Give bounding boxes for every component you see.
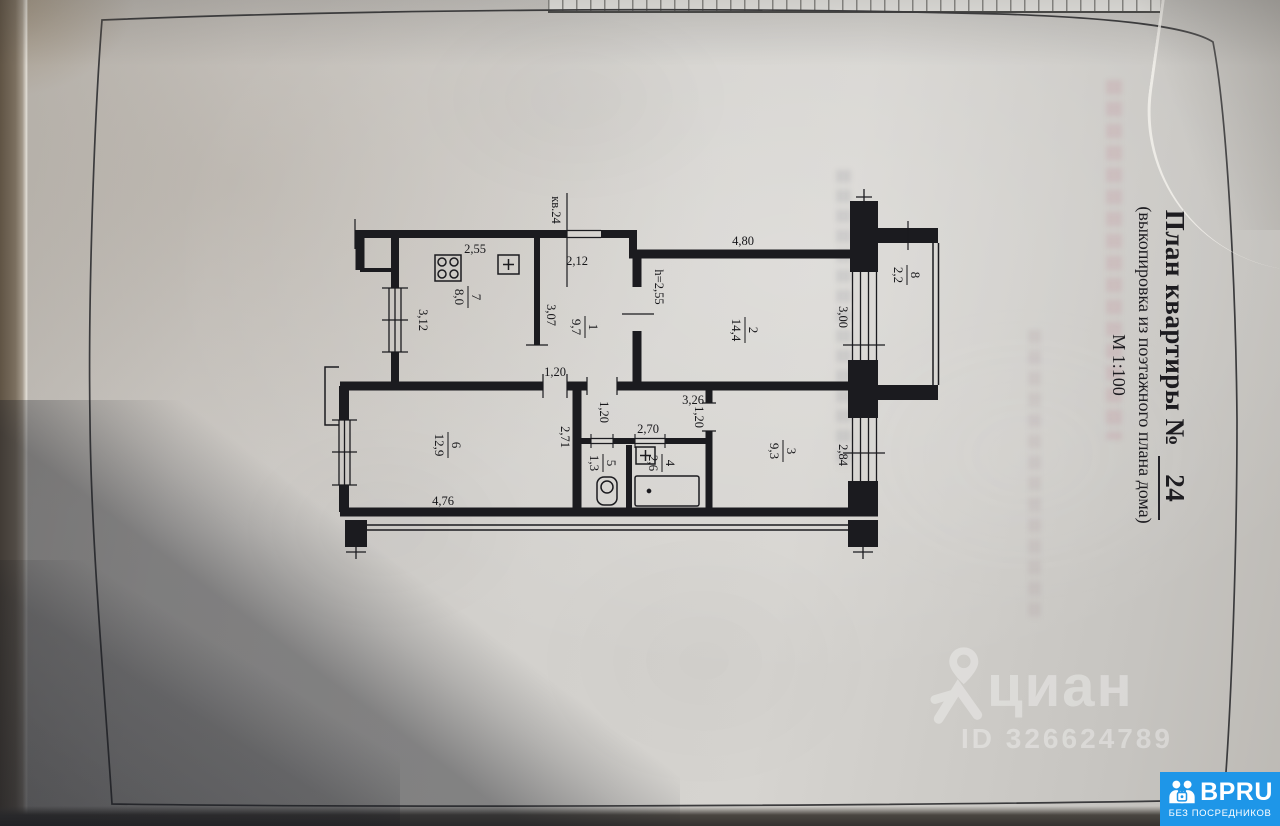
bath-sink-icon bbox=[636, 447, 655, 464]
floor-plan-drawing: 2,55 2,12 4,80 1,20 2,70 3,26 4,76 3,12 … bbox=[315, 175, 985, 595]
window-room2 bbox=[853, 272, 877, 360]
dimension-labels: 2,55 2,12 4,80 1,20 2,70 3,26 4,76 3,12 … bbox=[416, 196, 850, 508]
dim-inner-hall-width: 1,20 bbox=[597, 401, 611, 423]
apartment-number-label: кв.24 bbox=[549, 196, 563, 224]
cian-logo-text: циан bbox=[987, 653, 1134, 720]
svg-text:8,0: 8,0 bbox=[452, 289, 467, 305]
listing-id: ID 326624789 bbox=[961, 723, 1173, 755]
paper-sheet bbox=[0, 0, 1280, 826]
svg-text:5: 5 bbox=[604, 460, 619, 467]
svg-text:8: 8 bbox=[908, 272, 923, 279]
scale-note: М 1:100 bbox=[1106, 85, 1132, 645]
cast-shadow bbox=[0, 400, 680, 826]
bpru-tagline: БЕЗ ПОСРЕДНИКОВ bbox=[1160, 808, 1280, 819]
svg-text:7: 7 bbox=[469, 294, 484, 301]
graph-paper-sliver bbox=[548, 0, 1160, 13]
lighting-corner bbox=[1140, 0, 1280, 230]
fixtures bbox=[435, 255, 699, 506]
paper-torn-edge bbox=[1127, 0, 1280, 270]
window-kitchen bbox=[389, 288, 401, 352]
ink-bleed-smudge bbox=[1106, 80, 1122, 440]
dim-room3-depth: 2,84 bbox=[836, 444, 850, 467]
dim-room6-depth: 2,71 bbox=[558, 426, 572, 448]
kitchen-sink-icon bbox=[498, 255, 519, 274]
balcony-railing bbox=[933, 243, 939, 385]
bpru-badge: BPRU БЕЗ ПОСРЕДНИКОВ bbox=[1160, 772, 1280, 826]
svg-text:6: 6 bbox=[449, 442, 464, 449]
window-room3 bbox=[853, 418, 877, 481]
svg-text:2,6: 2,6 bbox=[646, 455, 661, 472]
page-subtitle: (выкопировка из поэтажного плана дома) bbox=[1132, 85, 1158, 645]
svg-text:12,9: 12,9 bbox=[432, 434, 447, 457]
svg-text:9,3: 9,3 bbox=[767, 443, 782, 459]
table-edge bbox=[0, 0, 28, 826]
dim-room2-depth: 3,00 bbox=[836, 306, 850, 328]
bathtub-icon bbox=[635, 476, 699, 506]
svg-text:9,7: 9,7 bbox=[569, 319, 584, 336]
drawing-frame-border bbox=[0, 0, 1280, 826]
page-title: План квартиры №24 bbox=[1158, 85, 1192, 645]
room-label-4: 4 2,6 bbox=[646, 454, 678, 472]
table-edge bbox=[0, 806, 1280, 826]
svg-text:1,3: 1,3 bbox=[587, 455, 602, 471]
dim-room2-width: 4,80 bbox=[732, 234, 754, 248]
room-labels: 1 9,7 2 14,4 3 9,3 4 2,6 5 bbox=[432, 265, 923, 472]
walls bbox=[325, 189, 939, 559]
dim-room6-width: 4,76 bbox=[432, 494, 454, 508]
room-label-8-balcony: 8 2,2 bbox=[891, 265, 923, 285]
room-label-1: 1 9,7 bbox=[569, 316, 601, 338]
title-block: План квартиры №24 (выкопировка из поэтаж… bbox=[1096, 85, 1192, 645]
room-label-7: 7 8,0 bbox=[452, 286, 484, 308]
svg-text:3: 3 bbox=[784, 448, 799, 455]
ceiling-height-note: h=2,55 bbox=[652, 269, 666, 304]
dim-hall-depth: 3,07 bbox=[544, 304, 558, 326]
room-label-2: 2 14,4 bbox=[729, 317, 761, 343]
dim-inner-hall-door: 1,20 bbox=[544, 365, 566, 379]
bpru-people-lock-icon bbox=[1167, 777, 1197, 807]
window-room6 bbox=[339, 420, 350, 485]
ink-bleed-smudge bbox=[1028, 330, 1041, 620]
svg-text:2: 2 bbox=[746, 327, 761, 334]
photo-of-floor-plan-document: 2,55 2,12 4,80 1,20 2,70 3,26 4,76 3,12 … bbox=[0, 0, 1280, 826]
cian-watermark: циан ID 326624789 bbox=[925, 645, 1195, 760]
svg-text:2,2: 2,2 bbox=[891, 267, 906, 283]
cast-shadow bbox=[0, 560, 400, 826]
svg-text:4: 4 bbox=[663, 460, 678, 467]
svg-text:14,4: 14,4 bbox=[729, 319, 744, 342]
photo-vignette bbox=[0, 0, 1280, 826]
dim-kitchen-width: 2,55 bbox=[464, 242, 486, 256]
room-label-6: 6 12,9 bbox=[432, 432, 464, 458]
dim-room3-width: 3,26 bbox=[682, 393, 704, 407]
svg-text:1: 1 bbox=[586, 324, 601, 331]
dim-room3-door: 1,20 bbox=[692, 406, 706, 428]
dim-kitchen-depth: 3,12 bbox=[416, 309, 430, 331]
toilet-icon bbox=[597, 477, 617, 505]
room-label-5: 5 1,3 bbox=[587, 454, 619, 472]
paper-texture bbox=[0, 0, 1280, 826]
dim-hall-width: 2,12 bbox=[566, 254, 588, 268]
lighting-corner bbox=[0, 0, 190, 150]
cian-pin-person-icon bbox=[929, 645, 987, 727]
room-label-3: 3 9,3 bbox=[767, 440, 799, 462]
apartment-number: 24 bbox=[1158, 456, 1190, 520]
bpru-logo-text: BPRU bbox=[1200, 778, 1273, 807]
ink-bleed-smudge bbox=[836, 170, 851, 470]
stove-icon bbox=[435, 255, 461, 281]
dim-bath-block-width: 2,70 bbox=[637, 422, 659, 436]
